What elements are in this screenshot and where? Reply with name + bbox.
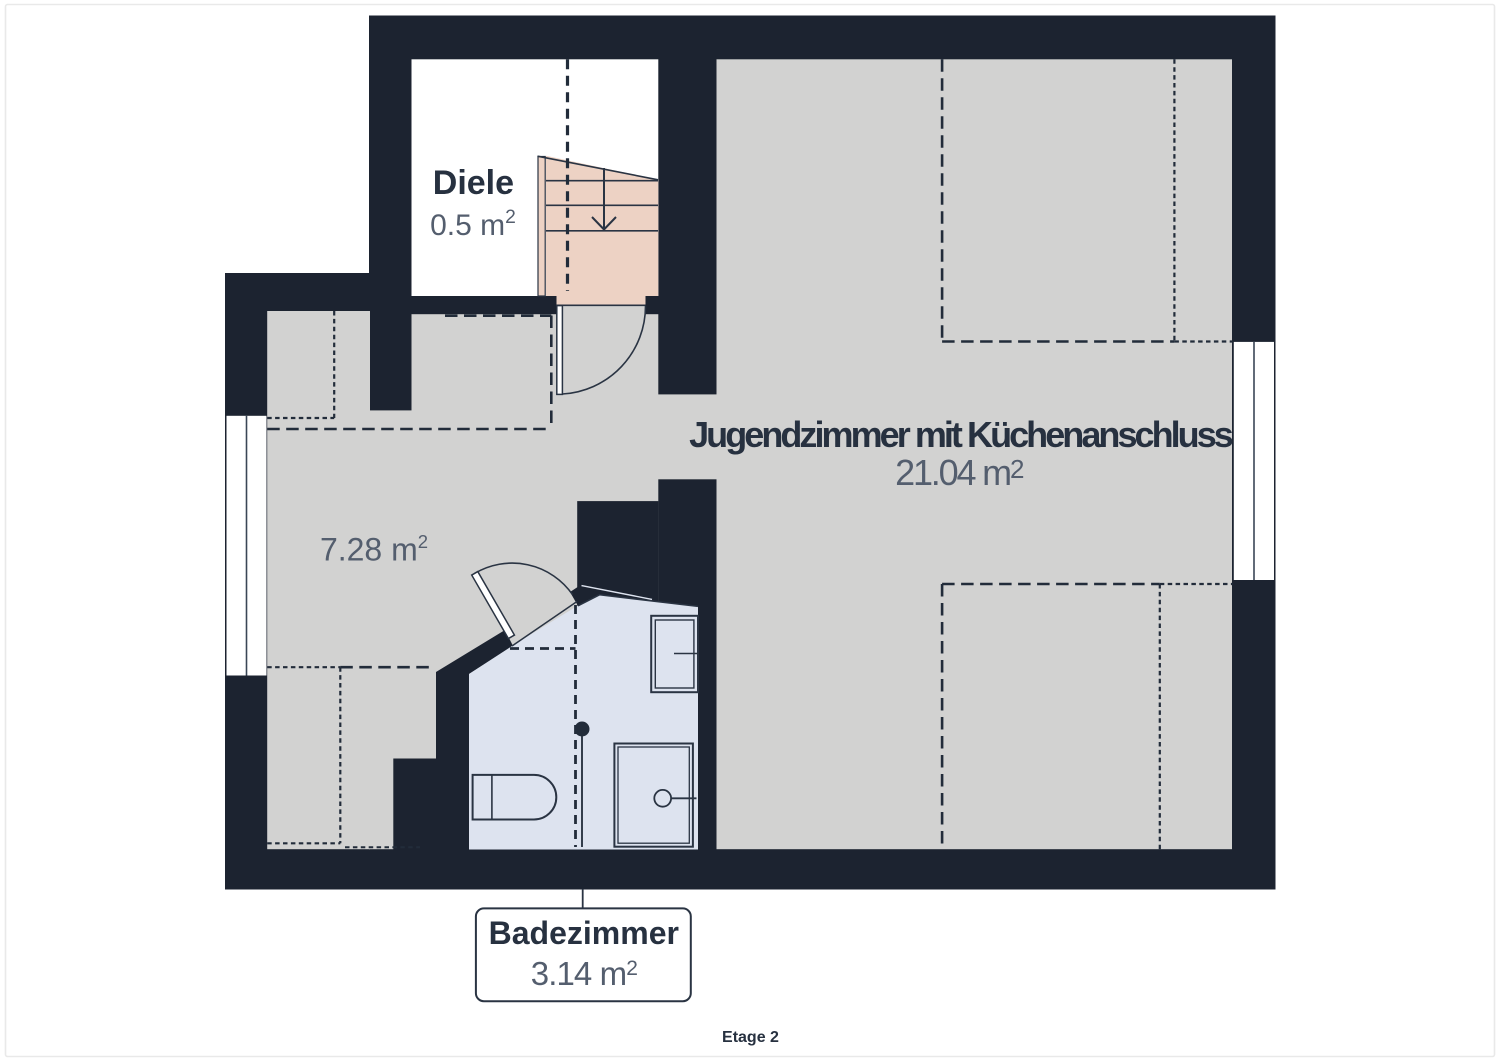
svg-text:21.04 m2: 21.04 m2 (895, 452, 1024, 493)
svg-text:Diele: Diele (433, 164, 514, 202)
svg-text:Badezimmer: Badezimmer (489, 915, 679, 951)
svg-text:0.5 m2: 0.5 m2 (430, 207, 516, 242)
svg-text:Etage 2: Etage 2 (722, 1029, 779, 1046)
svg-text:7.28 m2: 7.28 m2 (320, 531, 428, 568)
svg-text:Jugendzimmer mit Küchenanschlu: Jugendzimmer mit Küchenanschluss (689, 414, 1233, 455)
svg-text:3.14 m2: 3.14 m2 (531, 955, 638, 992)
